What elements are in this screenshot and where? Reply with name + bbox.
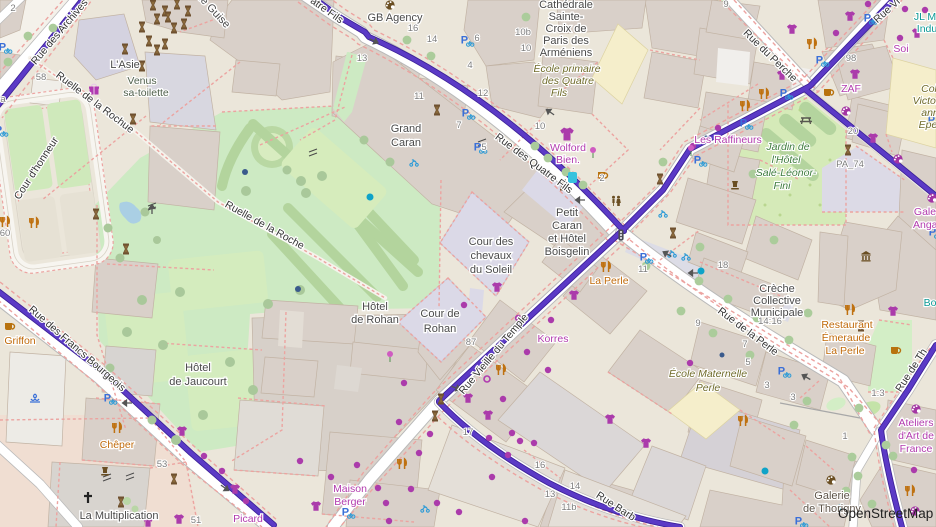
svg-text:Bo: Bo [924,297,936,309]
svg-text:2: 2 [10,3,15,14]
svg-text:11b: 11b [561,502,576,513]
svg-text:Rohan: Rohan [424,323,456,335]
svg-text:Venus: Venus [127,75,156,87]
svg-text:sa-toilette: sa-toilette [123,87,169,99]
svg-text:École Maternelle: École Maternelle [669,367,747,380]
svg-text:98: 98 [846,53,857,64]
svg-text:La Multiplication: La Multiplication [80,510,159,522]
svg-text:7: 7 [456,120,461,131]
svg-text:10: 10 [535,121,546,132]
svg-text:l'Hôtel: l'Hôtel [772,154,802,166]
svg-text:Petit: Petit [556,207,578,219]
svg-text:13: 13 [357,53,368,64]
svg-text:Restaurant: Restaurant [821,319,872,331]
svg-text:Col: Col [921,83,936,95]
svg-text:51: 51 [191,515,202,526]
svg-text:53: 53 [157,459,168,470]
svg-text:Croix de: Croix de [546,23,587,35]
svg-text:ann: ann [921,107,936,119]
svg-text:Sainte-: Sainte- [549,11,584,23]
svg-text:14: 14 [570,481,581,492]
svg-text:Korres: Korres [538,333,569,345]
svg-text:Cathédrale: Cathédrale [539,0,593,11]
svg-text:ZAF: ZAF [841,83,861,95]
svg-text:Boisgelin: Boisgelin [545,246,590,258]
svg-text:16: 16 [535,460,546,471]
svg-text:58: 58 [36,72,47,83]
svg-text:9: 9 [723,0,728,10]
svg-text:Picard: Picard [233,513,263,525]
svg-text:Caran: Caran [552,220,582,232]
svg-text:Salé-Léonor-: Salé-Léonor- [756,167,817,179]
svg-text:10b: 10b [515,27,531,38]
svg-text:Grand: Grand [391,123,422,135]
svg-text:Hôtel: Hôtel [185,362,211,374]
svg-text:60: 60 [0,228,10,239]
svg-text:chevaux: chevaux [471,250,512,262]
svg-text:L'Asie: L'Asie [110,59,140,71]
svg-text:1:3: 1:3 [871,388,884,399]
svg-text:Émeraude: Émeraude [822,331,871,344]
svg-text:de Jaucourt: de Jaucourt [169,376,226,388]
svg-text:Fini: Fini [774,180,792,192]
svg-text:France: France [900,443,933,455]
svg-text:87: 87 [466,337,477,348]
svg-text:Griffon: Griffon [4,335,35,347]
svg-text:17: 17 [463,427,474,438]
svg-text:11: 11 [638,264,648,275]
svg-text:a: a [0,94,6,105]
svg-text:3: 3 [790,392,795,403]
svg-text:4: 4 [467,60,472,71]
svg-text:Angar: Angar [913,219,936,231]
svg-text:13: 13 [545,489,556,500]
svg-text:14: 14 [427,34,438,45]
svg-text:5: 5 [481,142,486,153]
svg-text:Chêper: Chêper [100,439,135,451]
svg-text:La Perle: La Perle [589,275,628,287]
svg-text:Wolford: Wolford [550,142,586,154]
svg-text:PA_74: PA_74 [836,159,864,170]
svg-text:JL M: JL M [914,11,936,23]
svg-text:OpenStreetMap: OpenStreetMap [838,506,933,521]
svg-text:20: 20 [848,126,859,137]
svg-text:11: 11 [414,91,424,102]
svg-text:Berger: Berger [334,496,366,508]
svg-text:6: 6 [474,33,479,44]
svg-text:Collective: Collective [753,295,801,307]
svg-text:Les Raffineurs: Les Raffineurs [694,134,762,146]
svg-text:1: 1 [842,431,847,442]
svg-text:Cour de: Cour de [420,308,459,320]
svg-text:16: 16 [408,23,419,34]
svg-text:Arméniens: Arméniens [540,47,593,59]
svg-text:12: 12 [478,88,489,99]
svg-text:Perle: Perle [696,382,721,394]
svg-text:2: 2 [599,173,604,184]
svg-text:Maison: Maison [333,483,367,495]
svg-text:Soi: Soi [893,43,908,55]
svg-text:Epe: Epe [919,119,936,131]
svg-text:Ateliers: Ateliers [898,417,933,429]
svg-text:Caran: Caran [391,137,421,149]
svg-text:5: 5 [745,357,750,368]
svg-text:d'Art de: d'Art de [898,430,934,442]
svg-text:Fils: Fils [551,87,568,99]
svg-text:Galerie: Galerie [814,490,849,502]
svg-text:du Soleil: du Soleil [470,264,512,276]
svg-text:Crèche: Crèche [759,283,794,295]
svg-text:10: 10 [521,43,532,54]
svg-text:des Quatre: des Quatre [542,75,594,87]
svg-text:Jardin de: Jardin de [765,141,809,153]
svg-text:et Hôtel: et Hôtel [548,233,586,245]
svg-text:3: 3 [764,380,769,391]
svg-text:de Rohan: de Rohan [351,314,399,326]
svg-text:Hôtel: Hôtel [362,301,388,313]
svg-text:Victor: Victor [913,95,936,107]
svg-text:École primaire: École primaire [533,62,600,75]
svg-text:Indu: Indu [917,23,936,35]
svg-text:La Perle: La Perle [825,345,864,357]
svg-text:Paris des: Paris des [543,35,589,47]
svg-text:Bien.: Bien. [556,154,580,166]
svg-text:7: 7 [742,339,747,350]
svg-text:Gale: Gale [914,206,936,218]
svg-text:Cour des: Cour des [469,236,514,248]
svg-text:18: 18 [718,260,729,271]
svg-text:14:16: 14:16 [758,316,782,327]
svg-text:9: 9 [695,318,700,329]
